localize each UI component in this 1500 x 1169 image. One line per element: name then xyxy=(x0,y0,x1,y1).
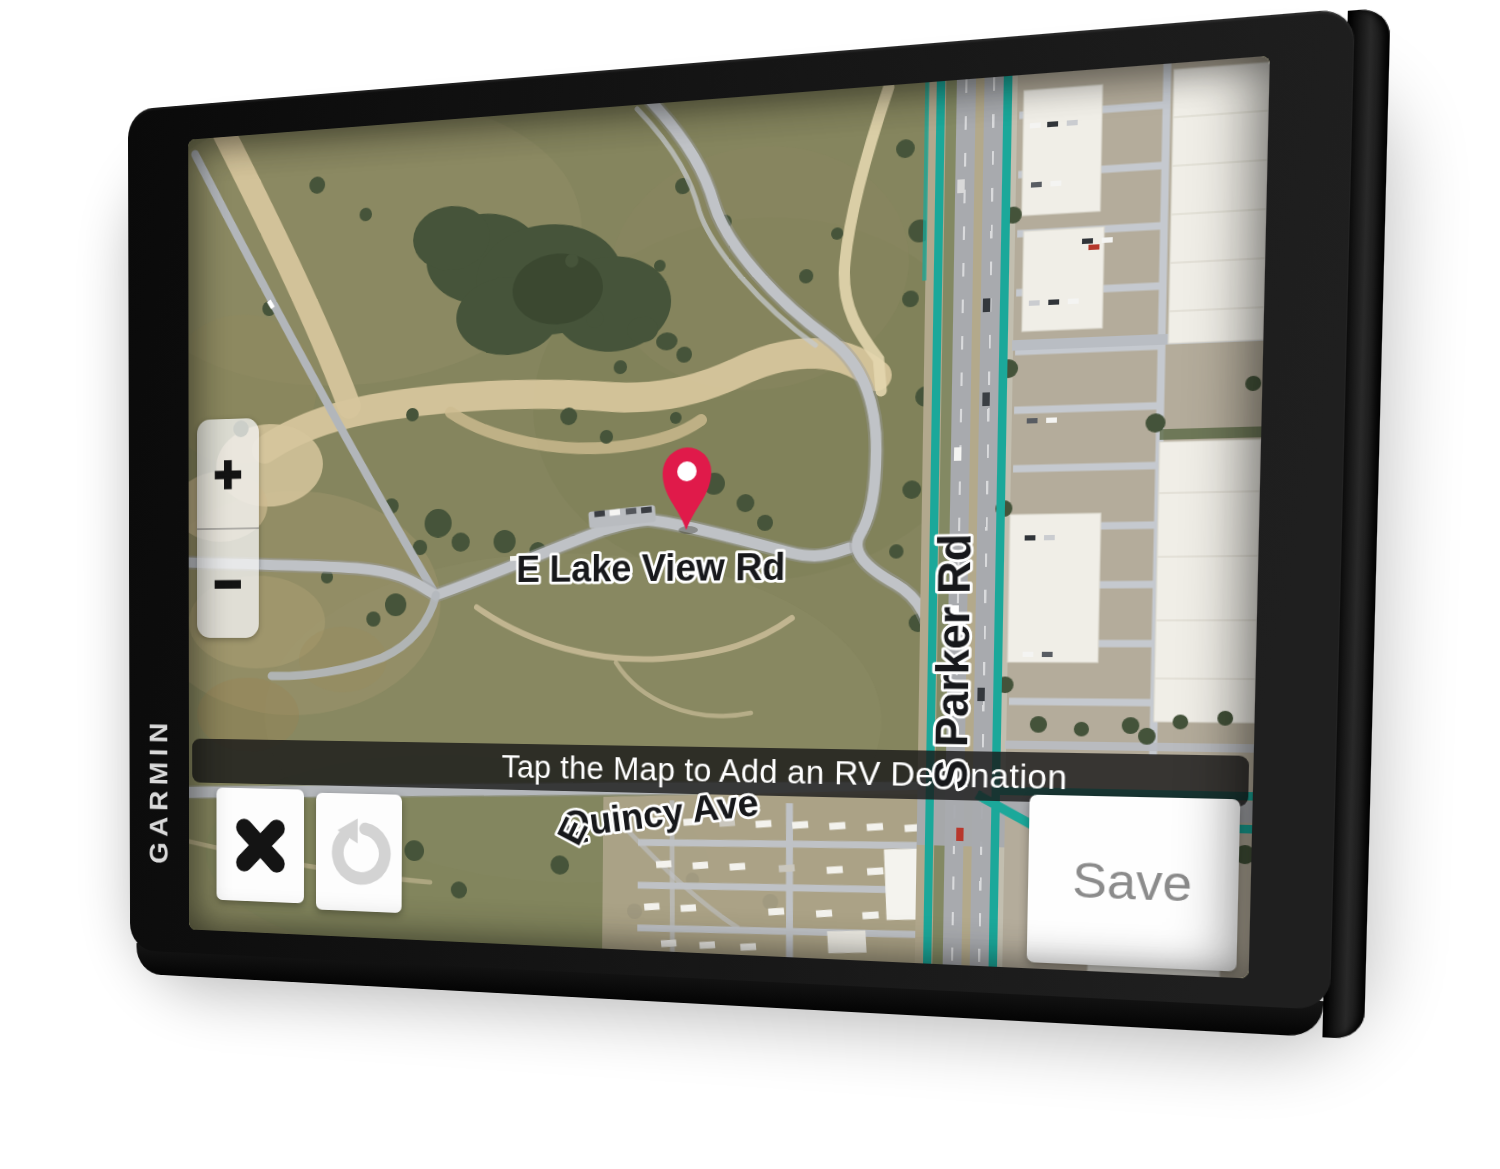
undo-icon xyxy=(325,815,393,890)
garmin-device: GARMIN xyxy=(128,5,1391,1044)
save-button-label: Save xyxy=(1072,852,1193,913)
zoom-panel: + − xyxy=(197,418,259,638)
product-photo-stage: GARMIN xyxy=(0,0,1500,1169)
close-button[interactable] xyxy=(216,788,304,904)
save-button[interactable]: Save xyxy=(1027,795,1241,972)
instruction-banner-text: Tap the Map to Add an RV Destination xyxy=(501,748,1067,797)
garmin-logo: GARMIN xyxy=(144,717,174,864)
close-icon xyxy=(230,811,291,879)
zoom-in-button[interactable]: + xyxy=(197,418,259,530)
undo-button[interactable] xyxy=(316,793,402,913)
device-front-bezel: GARMIN xyxy=(128,8,1355,1010)
zoom-out-button[interactable]: − xyxy=(197,529,259,638)
map-canvas[interactable]: Tap the Map to Add an RV Destination E L… xyxy=(188,56,1270,979)
